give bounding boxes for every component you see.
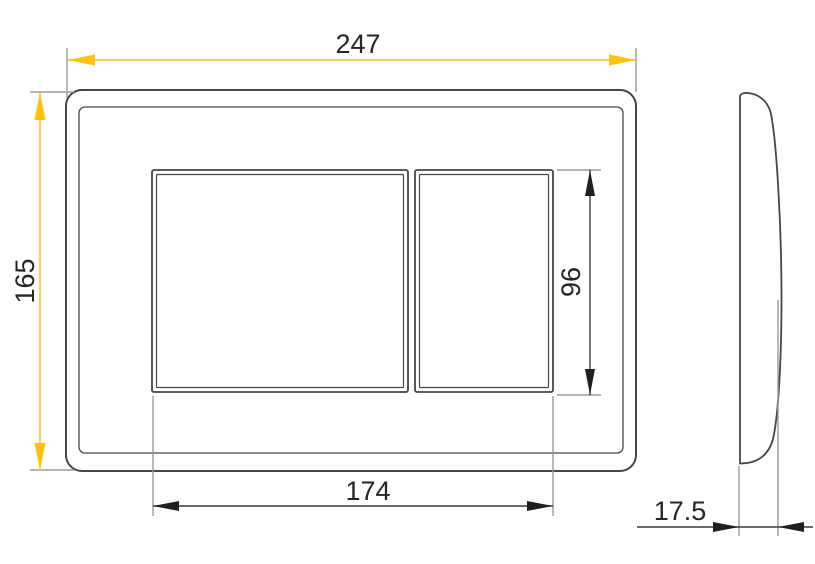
side-profile-outline bbox=[740, 93, 782, 464]
arrow-left-icon bbox=[778, 522, 804, 532]
dim-label-button-height: 96 bbox=[556, 267, 586, 297]
arrow-up-icon bbox=[34, 93, 45, 120]
dim-label-overall-height: 165 bbox=[10, 258, 40, 303]
arrow-right-icon bbox=[527, 501, 553, 511]
dimension-overall-width: 247 bbox=[67, 29, 636, 98]
arrow-right-icon bbox=[609, 54, 636, 65]
dim-label-buttons-width: 174 bbox=[345, 476, 390, 506]
dim-label-overall-width: 247 bbox=[335, 29, 380, 59]
arrow-left-icon bbox=[68, 54, 95, 65]
flush-plate-drawing-svg: 247 165 174 96 bbox=[0, 0, 815, 564]
dimension-overall-height: 165 bbox=[10, 92, 74, 470]
front-view bbox=[66, 90, 636, 471]
technical-drawing-canvas: 247 165 174 96 bbox=[0, 0, 815, 564]
dim-label-depth: 17.5 bbox=[654, 496, 707, 526]
arrow-left-icon bbox=[153, 501, 179, 511]
dimension-depth: 17.5 bbox=[637, 300, 813, 536]
side-view bbox=[740, 93, 782, 464]
arrow-right-icon bbox=[713, 522, 739, 532]
arrow-down-icon bbox=[34, 443, 45, 470]
